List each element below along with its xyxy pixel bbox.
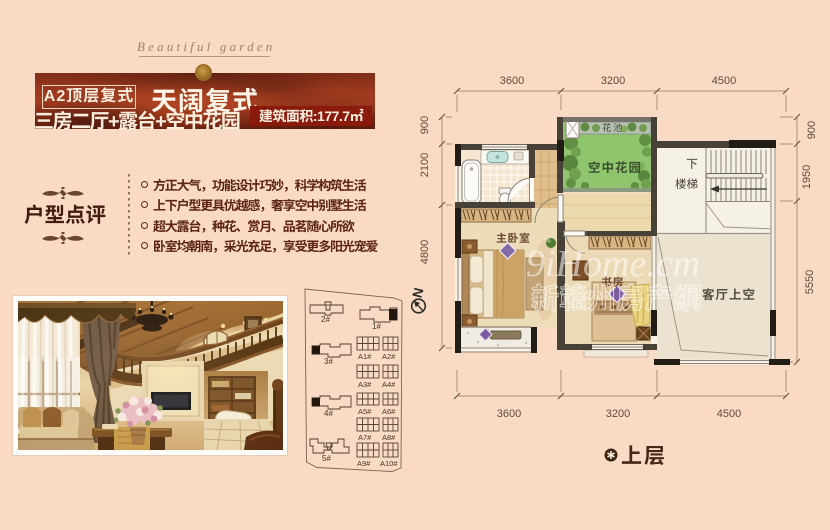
svg-text:900: 900 bbox=[419, 116, 431, 134]
svg-text:上层: 上层 bbox=[621, 445, 667, 468]
svg-text:900: 900 bbox=[806, 121, 818, 139]
svg-text:3200: 3200 bbox=[606, 408, 630, 420]
svg-text:2100: 2100 bbox=[419, 153, 431, 177]
svg-text:3600: 3600 bbox=[497, 408, 521, 420]
svg-text:空中花园: 空中花园 bbox=[588, 161, 642, 175]
svg-text:楼梯: 楼梯 bbox=[675, 178, 698, 191]
svg-text:4500: 4500 bbox=[717, 408, 741, 420]
svg-text:花池: 花池 bbox=[602, 123, 624, 134]
svg-text:3600: 3600 bbox=[500, 75, 524, 87]
svg-text:4800: 4800 bbox=[419, 240, 431, 264]
svg-text:新赣州房产網: 新赣州房产網 bbox=[531, 283, 702, 314]
svg-text:5550: 5550 bbox=[804, 270, 816, 294]
svg-text:4500: 4500 bbox=[712, 75, 736, 87]
svg-text:下: 下 bbox=[686, 157, 698, 171]
svg-text:9iHome.cm: 9iHome.cm bbox=[526, 243, 700, 285]
svg-text:3200: 3200 bbox=[601, 75, 625, 87]
svg-text:客厅上空: 客厅上空 bbox=[702, 288, 756, 302]
svg-text:N: N bbox=[410, 286, 427, 299]
svg-text:1950: 1950 bbox=[801, 165, 813, 189]
